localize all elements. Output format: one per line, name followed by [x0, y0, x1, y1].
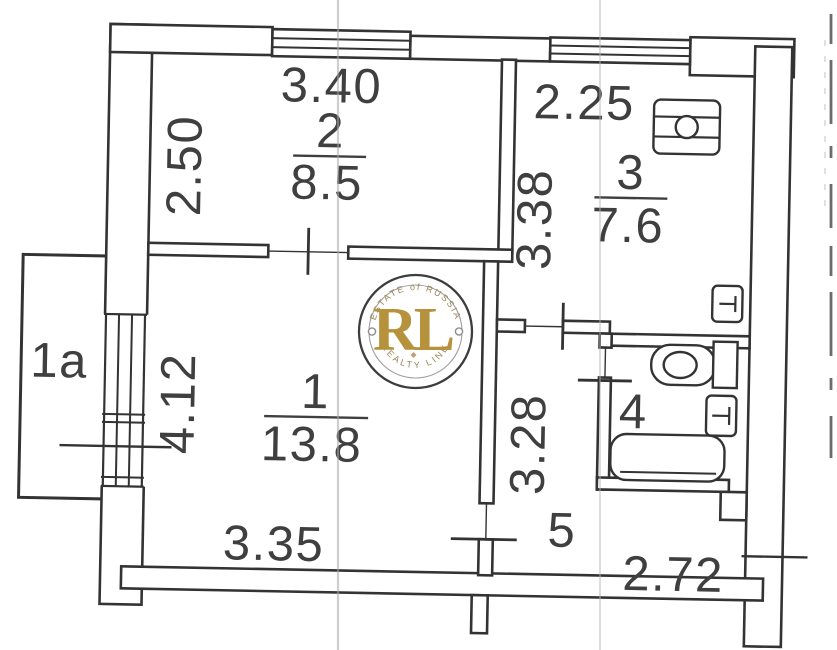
window-sill-middle [410, 36, 550, 62]
door-threshold-bathroom [605, 348, 606, 378]
room-label-bedroom: 2 [316, 104, 346, 159]
window-icon-kitchen [550, 37, 690, 64]
dimension-kitchen-height: 3.38 [507, 168, 563, 270]
room-label-hallway: 5 [547, 503, 577, 558]
toilet-icon [651, 340, 738, 388]
wall-bathroom-step [720, 492, 747, 520]
door-threshold-living-hall [486, 503, 487, 539]
door-tick-bedroom [308, 228, 309, 275]
bathtub-icon [610, 434, 725, 482]
radiator-icon-bathroom [706, 396, 737, 437]
radiator-icon-kitchen [712, 286, 743, 323]
door-tick-kitchen [562, 303, 563, 350]
stove-icon [653, 99, 720, 154]
floor-plan-scan: 3.40 2.50 2 8.5 2.25 3.38 3 7.6 1a 4.12 … [0, 0, 837, 650]
dimension-living-width: 3.35 [222, 516, 324, 572]
wall-hall-kitchen-left [497, 319, 525, 332]
watermark-stamp: ESTATE of RUSSIA REALTY LINE RL [359, 275, 472, 388]
room-label-kitchen: 3 [616, 146, 646, 201]
door-threshold-kitchen [525, 326, 563, 327]
room-label-balcony: 1a [30, 334, 89, 389]
dimension-living-height: 4.12 [150, 352, 206, 454]
door-tick-living-hall [451, 539, 517, 540]
wall-bedroom-living-right [348, 247, 512, 262]
watermark-right-dot [455, 328, 462, 335]
dimension-kitchen-width: 2.25 [533, 75, 635, 131]
wall-bedroom-living-left [148, 243, 268, 257]
dimension-hallway-width: 2.72 [622, 547, 724, 603]
dimension-tick-right-wall [742, 556, 808, 557]
room-label-bathroom: 4 [618, 385, 648, 440]
wall-bathroom-left-stub [600, 333, 612, 347]
wall-living-hall-upper [479, 261, 498, 503]
balcony-window-icon [99, 314, 150, 487]
door-tick-bathroom [578, 380, 632, 381]
room-label-living: 1 [301, 365, 331, 420]
area-label-bedroom: 8.5 [290, 155, 364, 210]
wall-top-left [110, 24, 273, 55]
wall-entrance-stub [471, 595, 488, 633]
window-icon-bedroom [272, 29, 410, 59]
area-label-kitchen: 7.6 [591, 198, 665, 253]
wall-bathroom-left [597, 377, 611, 489]
wall-hall-kitchen-right [563, 321, 610, 334]
wall-living-hall-lower [478, 539, 493, 575]
dimension-bedroom-height: 2.50 [157, 114, 213, 216]
area-label-living: 13.8 [260, 417, 362, 473]
dimension-hallway-height: 3.28 [501, 393, 557, 495]
